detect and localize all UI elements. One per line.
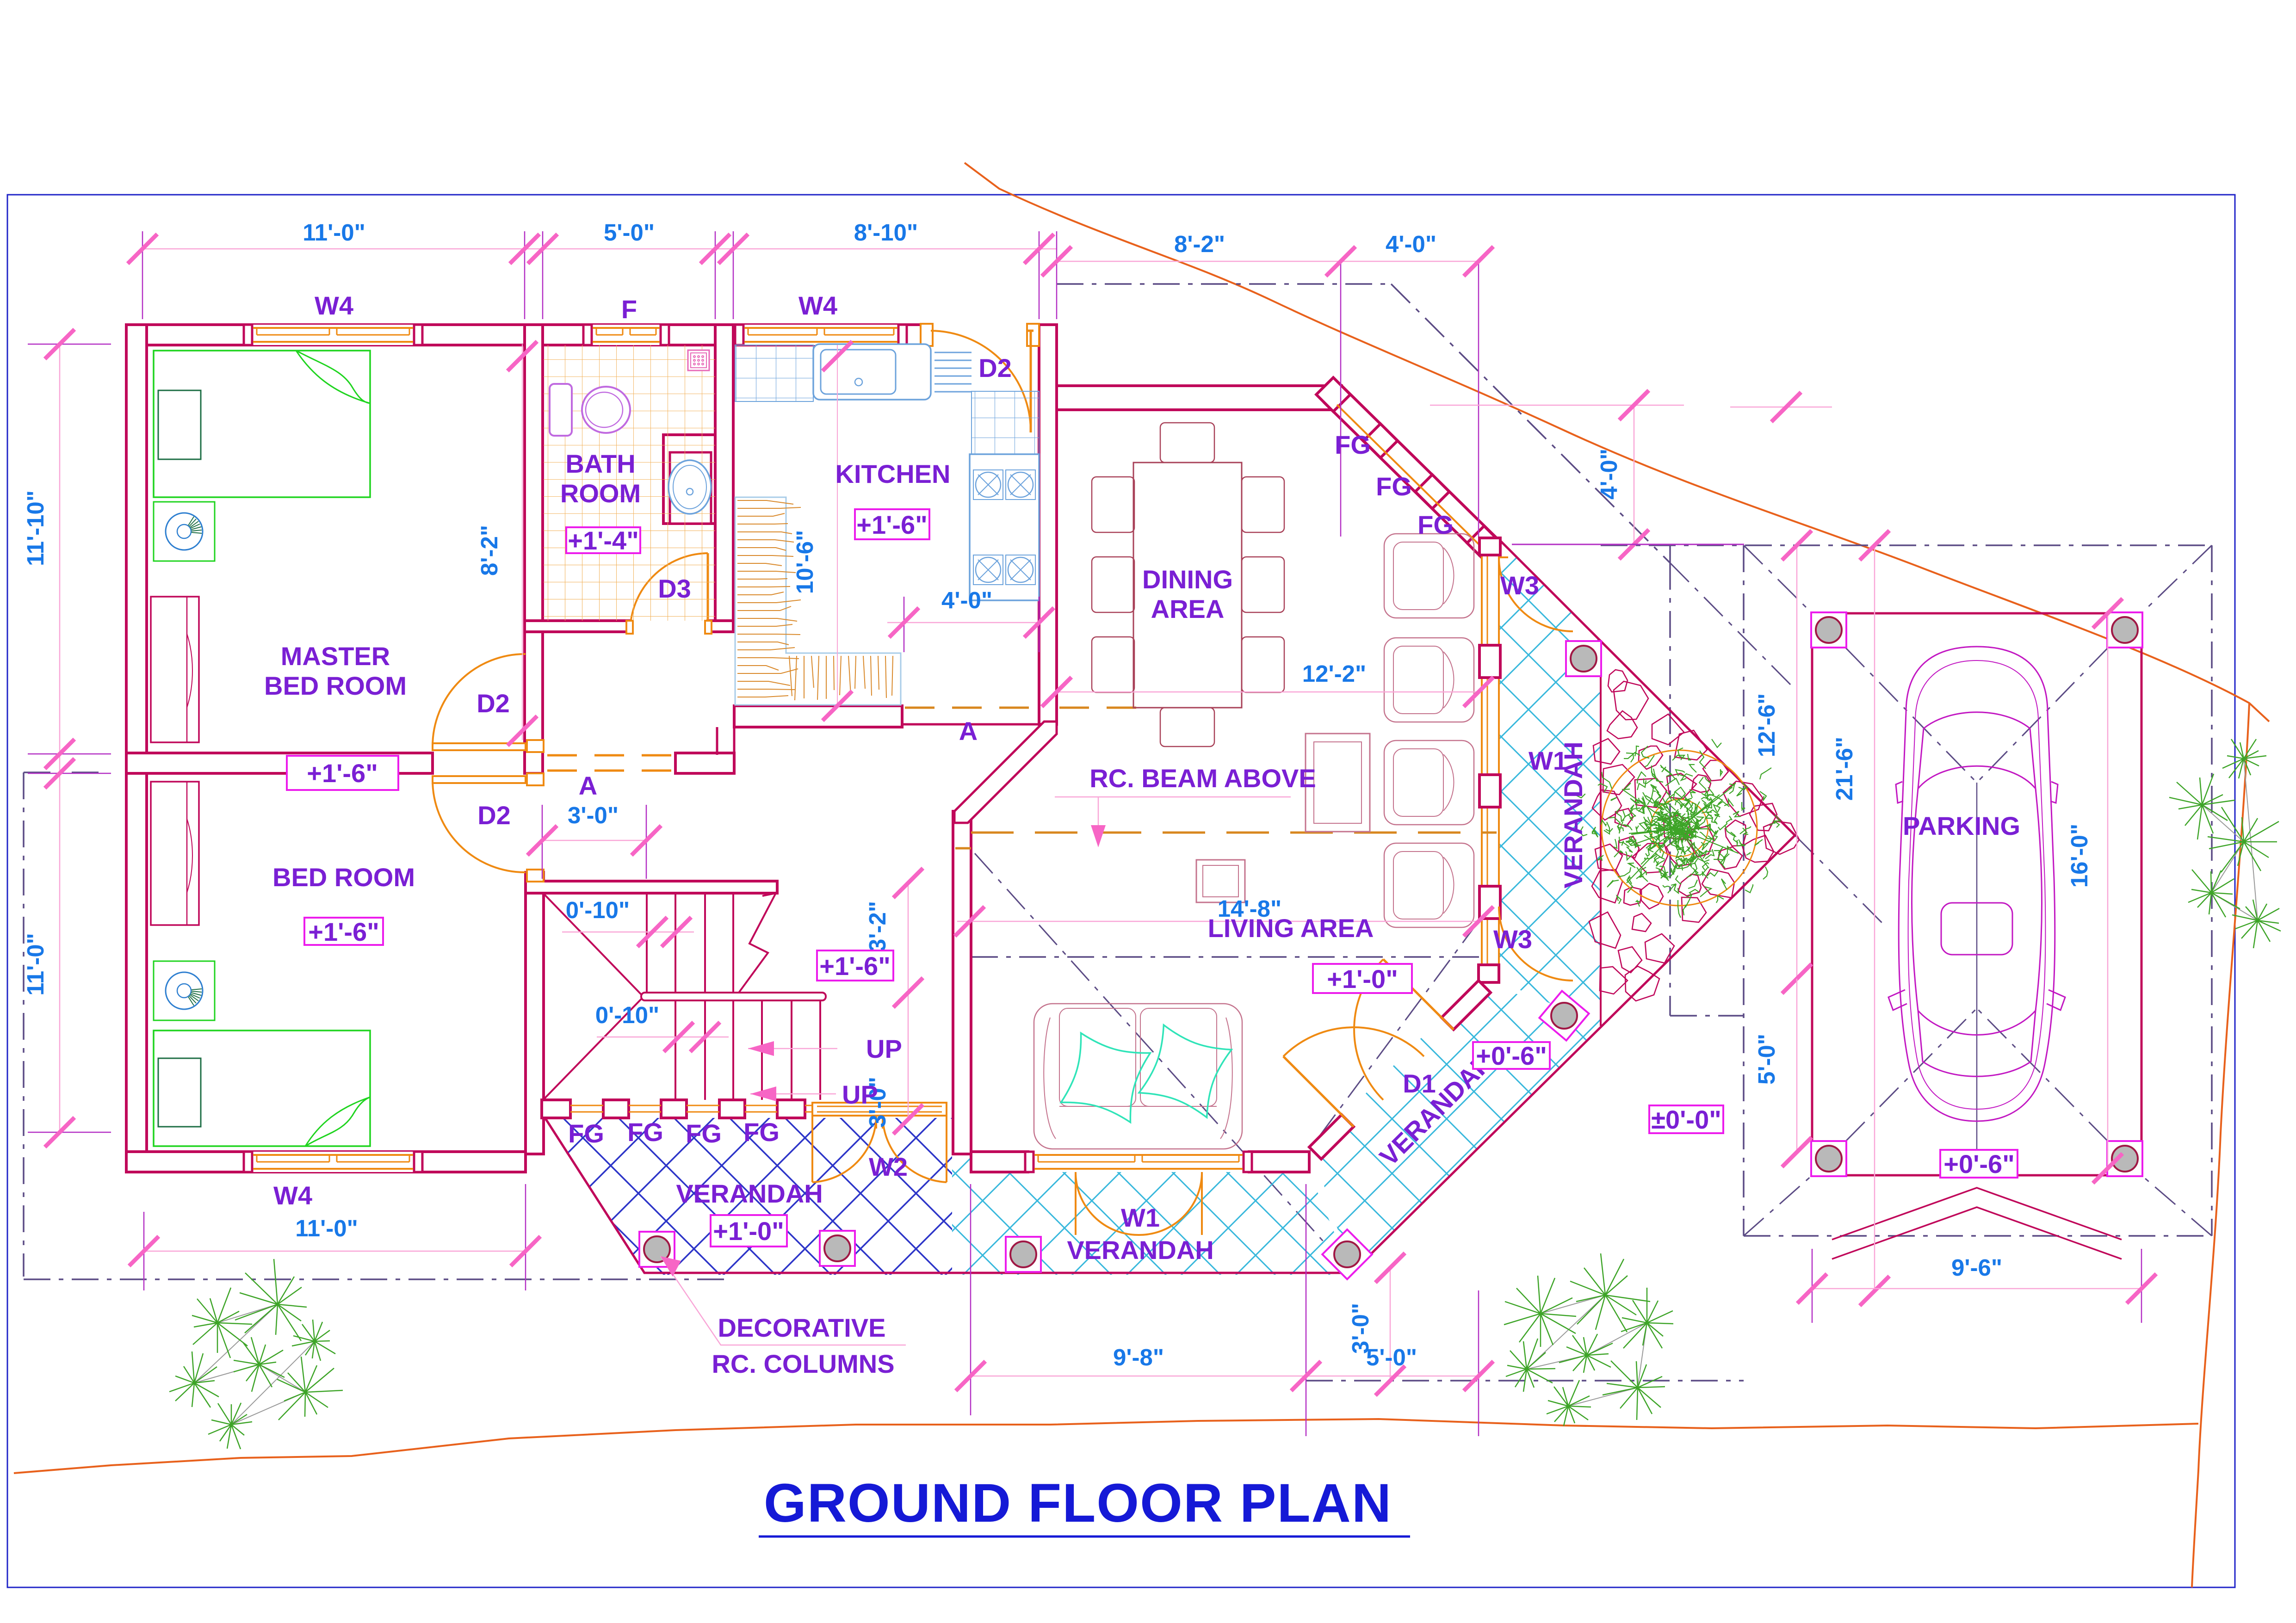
svg-text:W2: W2: [869, 1152, 908, 1181]
svg-text:BATH: BATH: [565, 449, 635, 478]
svg-text:D3: D3: [658, 574, 691, 603]
svg-text:5'-0": 5'-0": [1753, 1034, 1780, 1085]
svg-text:9'-6": 9'-6": [1951, 1254, 2002, 1281]
svg-text:W4: W4: [273, 1181, 312, 1210]
svg-text:+0'-6": +0'-6": [1476, 1041, 1547, 1070]
svg-text:12'-6": 12'-6": [1753, 693, 1780, 757]
svg-text:D2: D2: [978, 353, 1012, 383]
svg-text:D1: D1: [1403, 1069, 1436, 1098]
svg-text:8'-2": 8'-2": [476, 525, 502, 576]
svg-text:VERANDAH: VERANDAH: [676, 1179, 823, 1208]
svg-text:11'-0": 11'-0": [22, 933, 49, 996]
svg-text:FG: FG: [743, 1117, 780, 1147]
svg-text:GROUND FLOOR PLAN: GROUND FLOOR PLAN: [764, 1473, 1392, 1534]
svg-text:+1'-6": +1'-6": [819, 951, 891, 981]
svg-text:LIVING AREA: LIVING AREA: [1208, 913, 1374, 943]
svg-text:W1: W1: [1529, 746, 1567, 775]
svg-text:BED ROOM: BED ROOM: [264, 671, 407, 700]
svg-text:10'-6": 10'-6": [792, 530, 818, 594]
svg-text:DINING: DINING: [1142, 565, 1233, 594]
svg-text:3'-0": 3'-0": [568, 802, 619, 828]
svg-text:16'-0": 16'-0": [2066, 824, 2092, 888]
svg-text:VERANDAH: VERANDAH: [1067, 1235, 1213, 1265]
svg-text:12'-2": 12'-2": [1302, 660, 1366, 687]
svg-text:+1'-6": +1'-6": [307, 759, 378, 788]
svg-text:0'-10": 0'-10": [566, 897, 630, 923]
svg-text:W3: W3: [1500, 571, 1539, 600]
svg-text:4'-0": 4'-0": [941, 587, 992, 613]
svg-text:+1'-4": +1'-4": [568, 526, 639, 555]
svg-text:W3: W3: [1493, 925, 1532, 954]
svg-text:+1'-6": +1'-6": [856, 510, 928, 539]
svg-text:+1'-0": +1'-0": [1327, 964, 1398, 994]
svg-text:D2: D2: [477, 801, 511, 830]
svg-text:11'-10": 11'-10": [22, 490, 49, 566]
svg-text:FG: FG: [1376, 472, 1412, 501]
svg-text:AREA: AREA: [1151, 594, 1225, 623]
svg-text:PARKING: PARKING: [1903, 811, 2020, 840]
svg-text:±0'-0": ±0'-0": [1651, 1105, 1721, 1134]
svg-text:KITCHEN: KITCHEN: [835, 459, 951, 488]
svg-text:FG: FG: [568, 1119, 604, 1148]
svg-text:FG: FG: [686, 1119, 722, 1148]
svg-text:W4: W4: [315, 291, 353, 320]
svg-text:+1'-0": +1'-0": [713, 1216, 784, 1246]
svg-text:FG: FG: [627, 1117, 663, 1147]
svg-text:3'-0": 3'-0": [1347, 1303, 1374, 1354]
svg-text:3'-2": 3'-2": [864, 901, 891, 952]
svg-text:21'-6": 21'-6": [1831, 737, 1857, 801]
svg-text:FG: FG: [1335, 430, 1371, 459]
svg-text:9'-8": 9'-8": [1113, 1344, 1164, 1370]
svg-text:FG: FG: [1417, 510, 1454, 539]
svg-text:5'-0": 5'-0": [1366, 1344, 1417, 1370]
svg-text:11'-0": 11'-0": [295, 1215, 358, 1241]
svg-text:BED ROOM: BED ROOM: [272, 863, 415, 892]
svg-text:RC. BEAM ABOVE: RC. BEAM ABOVE: [1089, 764, 1316, 793]
svg-text:11'-0": 11'-0": [303, 219, 365, 246]
svg-text:UP: UP: [842, 1080, 878, 1109]
svg-text:4'-0": 4'-0": [1386, 231, 1436, 257]
svg-text:MASTER: MASTER: [281, 642, 390, 671]
svg-text:+0'-6": +0'-6": [1943, 1149, 2015, 1179]
svg-text:A: A: [579, 771, 597, 800]
svg-text:+1'-6": +1'-6": [308, 917, 379, 946]
svg-text:5'-0": 5'-0": [604, 219, 655, 246]
svg-text:D2: D2: [477, 689, 510, 718]
svg-text:A: A: [959, 716, 978, 746]
svg-text:ROOM: ROOM: [560, 479, 641, 508]
svg-text:UP: UP: [866, 1034, 902, 1063]
svg-text:RC. COLUMNS: RC. COLUMNS: [712, 1349, 894, 1378]
svg-text:W1: W1: [1121, 1203, 1160, 1232]
svg-text:4'-0": 4'-0": [1596, 449, 1622, 500]
svg-text:0'-10": 0'-10": [595, 1002, 659, 1028]
svg-text:8'-10": 8'-10": [854, 219, 918, 246]
svg-text:8'-2": 8'-2": [1174, 231, 1225, 257]
svg-text:F: F: [621, 295, 637, 324]
svg-text:DECORATIVE: DECORATIVE: [718, 1313, 886, 1342]
svg-text:W4: W4: [798, 291, 837, 320]
